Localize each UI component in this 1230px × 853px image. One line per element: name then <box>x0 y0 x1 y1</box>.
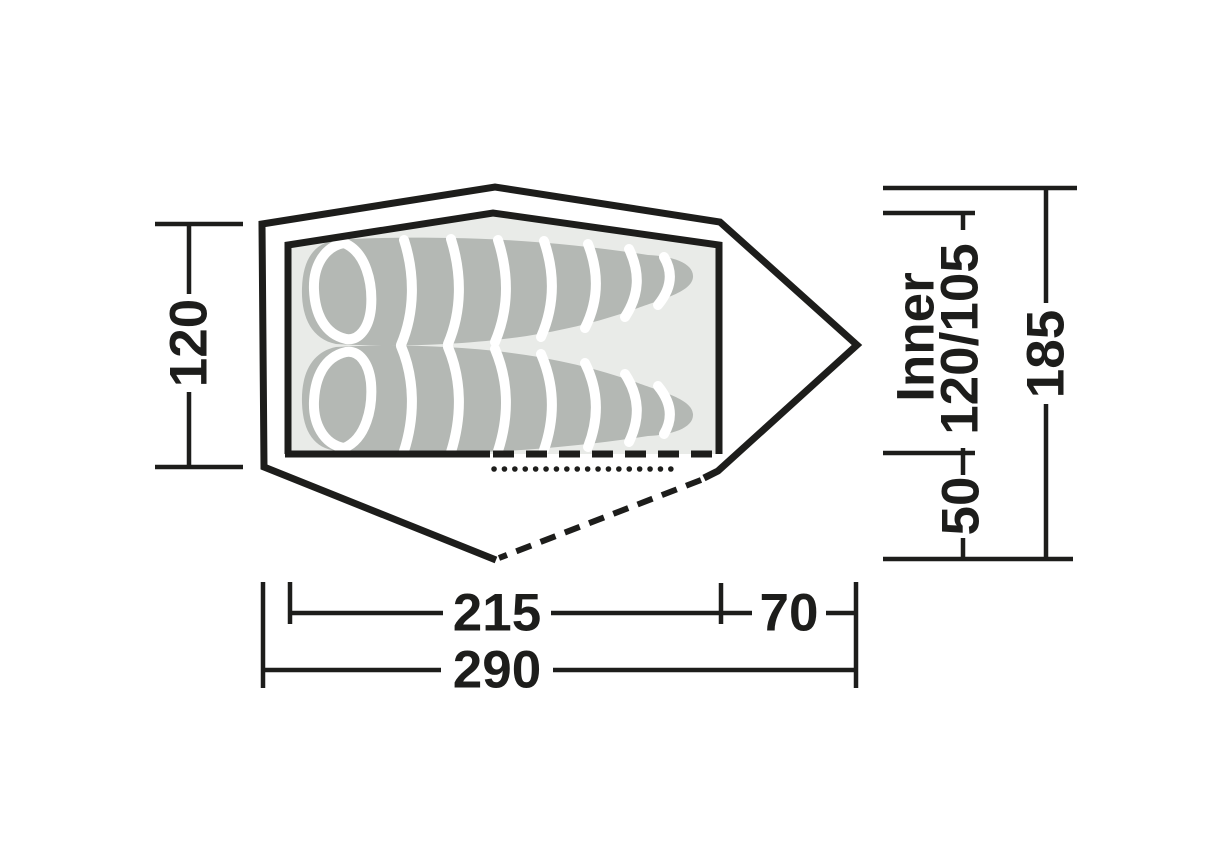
dimension-label-total-length: 290 <box>453 641 541 700</box>
dimension-label-total-width: 185 <box>1017 310 1076 398</box>
tent-floorplan-svg: 120 215 70 290 Inner 120/105 50 185 <box>0 0 1230 853</box>
dimension-label-vestibule-length: 70 <box>760 584 819 643</box>
vestibule-door-open-dashed-line <box>499 480 701 558</box>
dimension-label-vestibule-side-width: 50 <box>932 477 991 536</box>
tent-dimension-diagram: 120 215 70 290 Inner 120/105 50 185 <box>0 0 1230 853</box>
dimension-label-side-width: 120 <box>160 299 219 387</box>
dimension-label-inner-length: 215 <box>453 584 541 643</box>
dimension-label-inner-width: 120/105 <box>931 243 990 435</box>
